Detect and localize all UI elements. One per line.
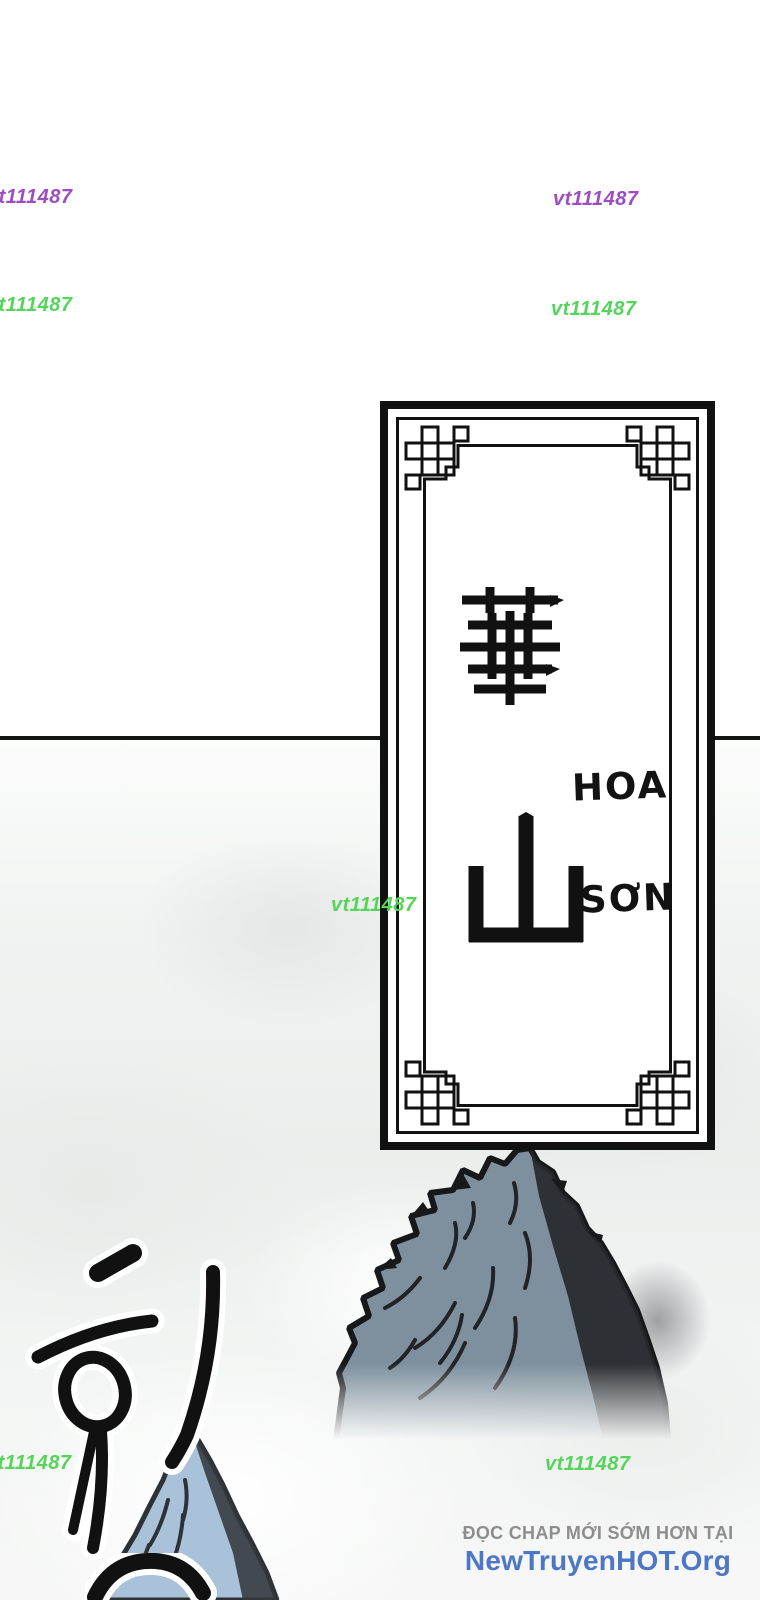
- hanja-hua-glyph: [450, 583, 570, 707]
- hanja-shan-glyph: [465, 812, 587, 948]
- footer-site-name: NewTruyenHOT.Org: [458, 1545, 738, 1577]
- watermark: vt111487: [545, 1454, 631, 1474]
- sfx-korean-hwi: [15, 1235, 240, 1565]
- watermark: vt111487: [0, 1453, 72, 1473]
- viet-label-son: SƠN: [579, 875, 676, 921]
- mountain-illustration: [325, 1148, 705, 1448]
- watermark: vt111487: [0, 187, 73, 207]
- watermark: vt111487: [553, 189, 639, 209]
- mountain-main-svg: [325, 1148, 705, 1448]
- huashan-plaque: HOA SƠN: [380, 401, 715, 1150]
- footer-tagline: ĐỌC CHAP MỚI SỚM HƠN TẠI: [458, 1522, 738, 1545]
- sfx-partial-stroke: [85, 1553, 225, 1600]
- watermark: vt111487: [551, 299, 637, 319]
- footer-credit: ĐỌC CHAP MỚI SỚM HƠN TẠI NewTruyenHOT.Or…: [458, 1522, 738, 1578]
- watermark: vt111487: [331, 895, 417, 915]
- viet-label-hoa: HOA: [571, 763, 669, 809]
- watermark: vt111487: [0, 295, 73, 315]
- comic-page: HOA SƠN vt111487 vt111487 vt111487 vt111…: [0, 0, 760, 1600]
